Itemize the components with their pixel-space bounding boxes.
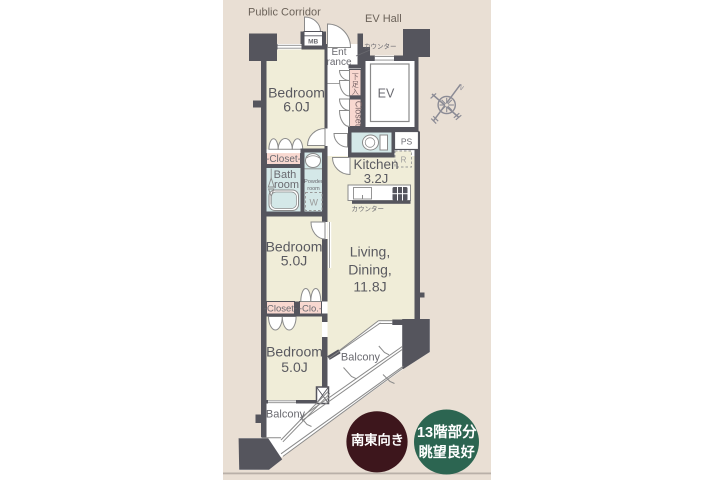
svg-text:13階部分: 13階部分 (417, 423, 477, 441)
svg-text:room: room (274, 179, 299, 191)
svg-text:Bedroom: Bedroom (266, 344, 323, 360)
svg-text:rance: rance (326, 57, 351, 68)
svg-text:眺望良好: 眺望良好 (419, 444, 475, 460)
svg-text:Powder: Powder (304, 179, 323, 185)
svg-text:R: R (401, 156, 407, 165)
svg-text:下: 下 (352, 73, 359, 81)
svg-text:PS: PS (401, 137, 413, 147)
svg-text:足: 足 (352, 81, 359, 89)
svg-text:-Closet-: -Closet- (264, 304, 297, 315)
svg-text:MB: MB (308, 39, 318, 46)
svg-text:W: W (309, 198, 318, 208)
svg-text:-Clo.-: -Clo.- (299, 304, 322, 315)
svg-text:Closet: Closet (353, 101, 363, 127)
svg-text:5.0J: 5.0J (281, 253, 307, 269)
svg-text:EV Hall: EV Hall (365, 13, 402, 25)
svg-text:カウンター: カウンター (364, 42, 397, 51)
svg-text:3.2J: 3.2J (364, 171, 389, 186)
svg-text:入: 入 (352, 88, 359, 96)
svg-text:カウンター: カウンター (352, 204, 385, 213)
svg-text:5.0J: 5.0J (281, 359, 307, 375)
svg-text:6.0J: 6.0J (283, 99, 309, 115)
svg-text:Public Corridor: Public Corridor (248, 7, 321, 19)
svg-text:11.8J: 11.8J (353, 279, 386, 295)
svg-text:Balcony: Balcony (266, 409, 306, 421)
svg-text:Balcony: Balcony (341, 352, 381, 364)
svg-text:南東向き: 南東向き (351, 432, 404, 448)
svg-text:room: room (307, 186, 320, 192)
svg-text:Kitchen: Kitchen (353, 157, 398, 172)
svg-text:EV: EV (378, 87, 395, 101)
svg-text:Dining,: Dining, (348, 262, 392, 278)
svg-text:-Closet-: -Closet- (266, 154, 301, 165)
svg-text:Living,: Living, (350, 244, 390, 260)
